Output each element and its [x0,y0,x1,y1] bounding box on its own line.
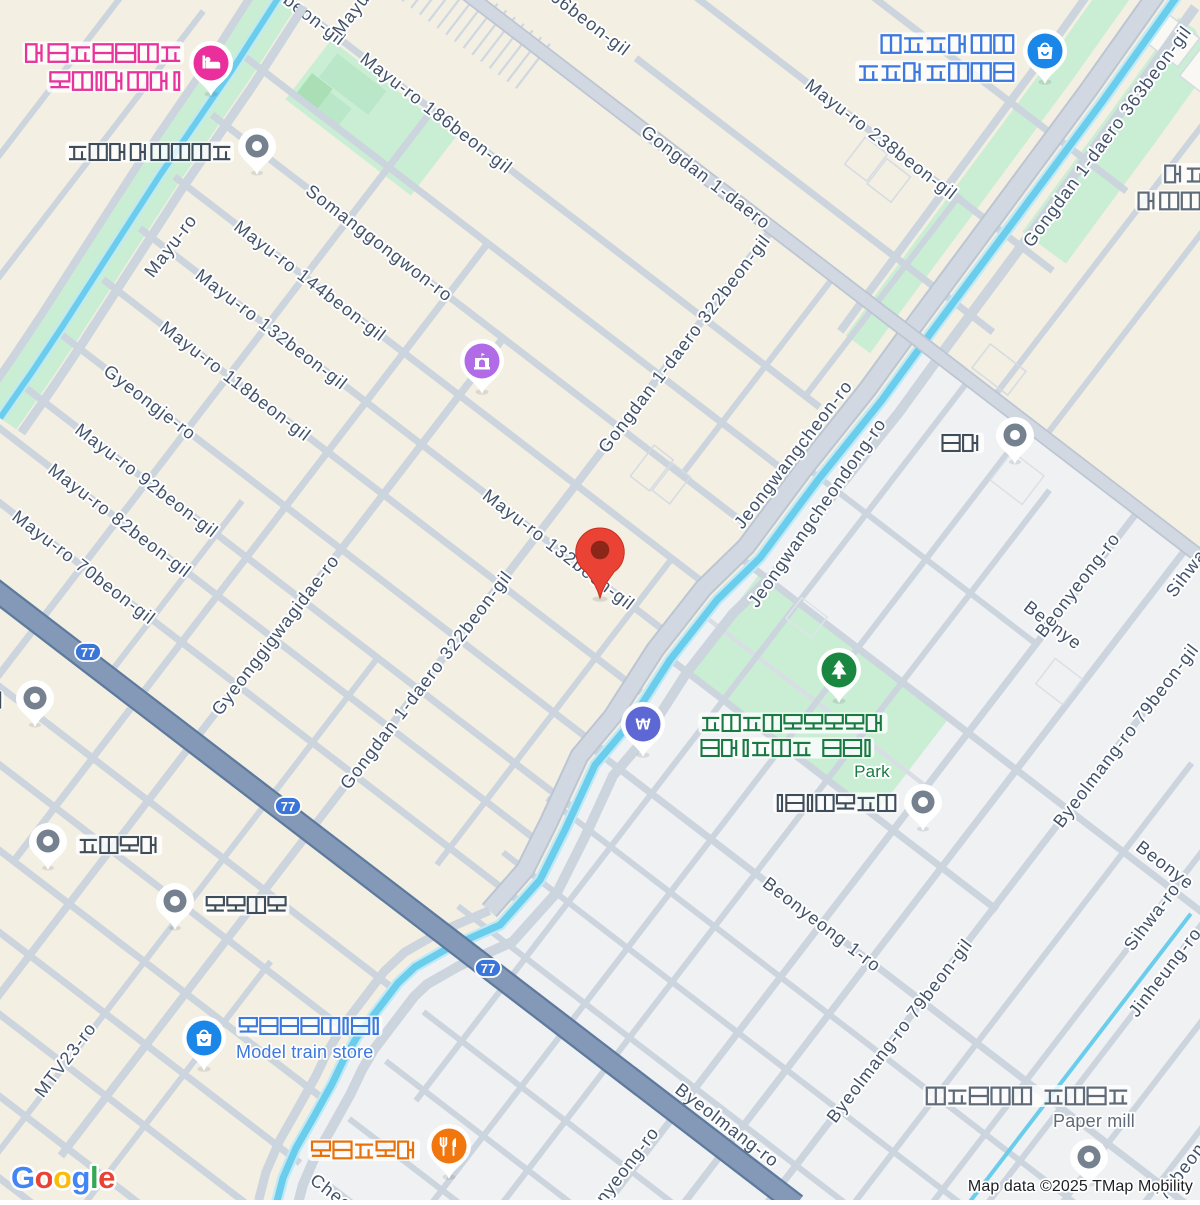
svg-text:Model train store: Model train store [236,1042,373,1062]
svg-text:77: 77 [281,799,295,814]
svg-text:Park: Park [854,762,890,781]
svg-text:Paper mill: Paper mill [1053,1111,1135,1131]
svg-text:Map data ©2025 TMap Mobility: Map data ©2025 TMap Mobility [968,1178,1193,1195]
svg-text:77: 77 [481,961,495,976]
svg-text:77: 77 [81,645,95,660]
svg-text:W: W [635,717,651,734]
svg-text:Google: Google [11,1160,115,1195]
